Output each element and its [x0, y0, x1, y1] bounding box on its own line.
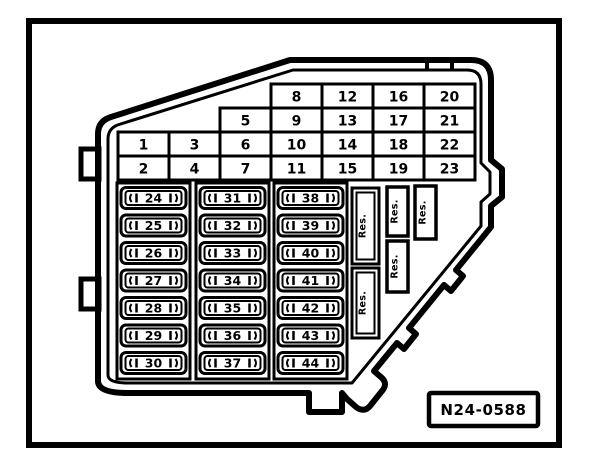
reserve-label: Res.: [358, 291, 369, 315]
fuse-slot-number: 33: [224, 246, 241, 261]
relay-grid-number: 15: [338, 162, 357, 178]
reserve-label: Res.: [390, 199, 401, 223]
fuse-slot: 30: [121, 353, 186, 374]
figure-code-box: N24-0588: [429, 393, 538, 426]
relay-grid-number: 16: [389, 90, 408, 106]
fuse-slot-number: 39: [302, 218, 319, 233]
reserve-label: Res.: [390, 254, 401, 278]
reserve-slot: Res.: [352, 188, 379, 264]
fuse-slot-number: 38: [302, 191, 319, 206]
reserve-slot: Res.: [415, 186, 436, 239]
relay-grid-number: 18: [389, 138, 408, 154]
relay-grid-number: 6: [241, 138, 251, 154]
fuse-slot: 29: [121, 325, 186, 346]
relay-grid-number: 19: [389, 162, 408, 178]
reserve-label: Res.: [358, 214, 369, 238]
relay-grid-number: 1: [139, 138, 149, 154]
fuse-slot-number: 28: [145, 301, 162, 316]
relay-grid-number: 12: [338, 90, 357, 106]
fuse-panel-diagram: 8 12 16 20 5 9 13 17 21 1 3 6 10 14 18 2…: [0, 0, 608, 470]
relay-grid-number: 17: [389, 114, 408, 130]
reserve-slot: Res.: [387, 187, 408, 236]
fuse-slot: 31: [200, 188, 265, 209]
diagram-canvas: 8 12 16 20 5 9 13 17 21 1 3 6 10 14 18 2…: [0, 0, 608, 470]
relay-grid-number: 22: [440, 138, 459, 154]
reserve-slot: Res.: [352, 268, 379, 338]
fuse-slot-number: 29: [145, 328, 162, 343]
reserve-label: Res.: [418, 200, 429, 224]
relay-grid-number: 10: [287, 138, 307, 154]
relay-grid-number: 8: [292, 90, 302, 106]
fuse-slot: 38: [278, 188, 343, 209]
fuse-slot-number: 32: [224, 218, 241, 233]
relay-grid-number: 21: [440, 114, 459, 130]
fuse-slot: 26: [121, 243, 186, 264]
fuse-slot-number: 31: [224, 191, 241, 206]
relay-grid-number: 14: [338, 138, 358, 154]
fuse-slot-number: 44: [302, 356, 320, 371]
fuse-slot-number: 40: [302, 246, 320, 261]
fuse-slot-number: 41: [302, 273, 319, 288]
fuse-slot: 41: [278, 270, 343, 291]
fuse-slot-number: 25: [145, 218, 162, 233]
fuse-slot-number: 42: [302, 301, 319, 316]
relay-grid-number: 20: [440, 90, 460, 106]
fuse-slot: 25: [121, 215, 186, 236]
fuse-slot-number: 36: [224, 328, 242, 343]
fuse-slot: 42: [278, 298, 343, 319]
fuse-slot-number: 26: [145, 246, 163, 261]
fuse-slot: 39: [278, 215, 343, 236]
fuse-slot: 27: [121, 270, 186, 291]
reserve-slot: Res.: [387, 241, 408, 292]
relay-grid-number: 2: [139, 162, 149, 178]
relay-grid-number: 13: [338, 114, 357, 130]
relay-grid-number: 9: [292, 114, 302, 130]
reserve-slots: Res. Res. Res. Res. Res.: [352, 186, 436, 338]
fuse-slot: 32: [200, 215, 265, 236]
fuse-slot: 24: [121, 188, 186, 209]
fuse-slot: 35: [200, 298, 265, 319]
fuse-slot-number: 35: [224, 301, 241, 316]
fuse-slot-number: 30: [145, 356, 163, 371]
relay-grid-number: 7: [241, 162, 251, 178]
relay-grid-number: 4: [190, 162, 200, 178]
fuse-slot: 34: [200, 270, 265, 291]
fuse-slot-number: 37: [224, 356, 241, 371]
fuse-slot-number: 43: [302, 328, 319, 343]
fuse-slot: 43: [278, 325, 343, 346]
relay-grid-number: 3: [190, 138, 200, 154]
fuse-slot-number: 24: [145, 191, 163, 206]
fuse-slot: 37: [200, 353, 265, 374]
relay-grid-number: 23: [440, 162, 459, 178]
fuse-slot: 36: [200, 325, 265, 346]
fuse-block: 24 25 26 27 28 29 30 31 32 33 34 35 36 3…: [117, 183, 347, 379]
fuse-slot: 28: [121, 298, 186, 319]
fuse-slot-number: 34: [224, 273, 242, 288]
relay-grid-number: 11: [287, 162, 306, 178]
fuse-slot: 40: [278, 243, 343, 264]
fuse-slot: 44: [278, 353, 343, 374]
relay-grid-number: 5: [241, 114, 251, 130]
figure-code: N24-0588: [440, 401, 526, 419]
fuse-slot-number: 27: [145, 273, 162, 288]
fuse-slot: 33: [200, 243, 265, 264]
